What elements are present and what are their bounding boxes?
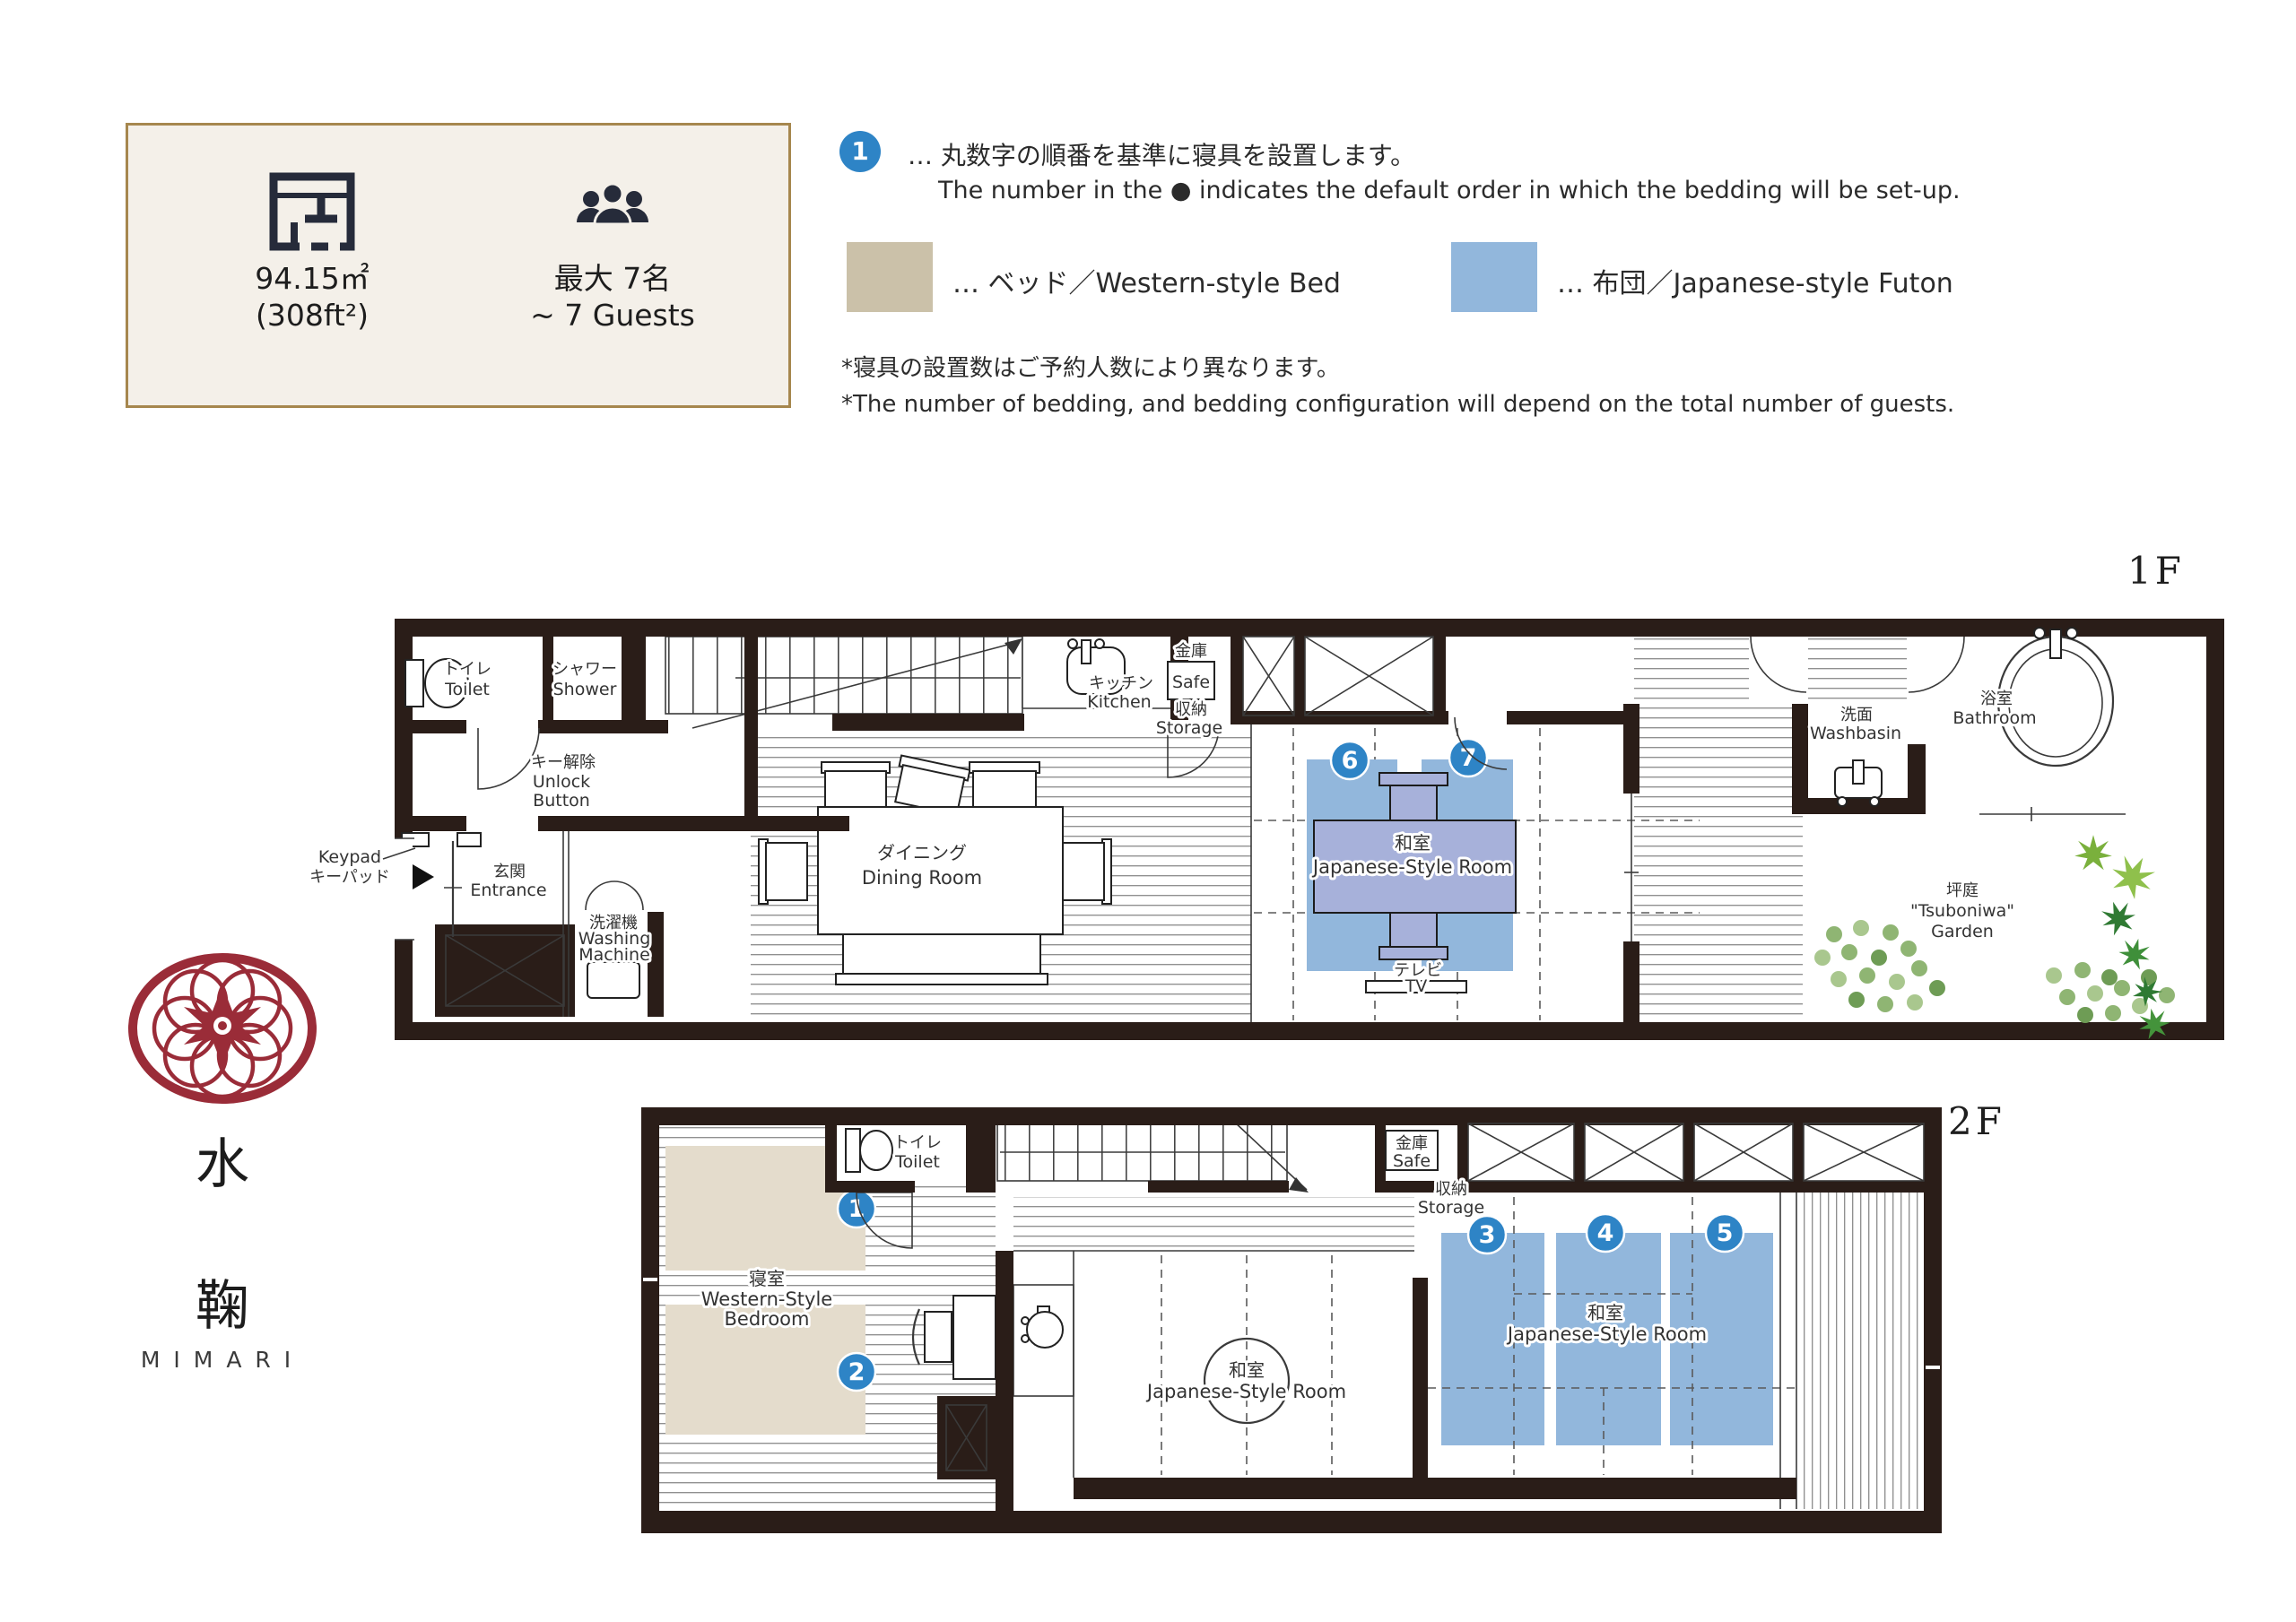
tv-label-en: TV: [1405, 976, 1428, 996]
logo-kanji-mizu: 水: [126, 1121, 319, 1199]
closet-x-1f-a: [1243, 637, 1294, 716]
bathtub-icon: [1998, 628, 2113, 766]
unlock-label-en1: Unlock: [533, 772, 590, 792]
svg-text:5: 5: [1717, 1219, 1734, 1247]
legend-order-circle: 1: [839, 131, 881, 172]
keypad-label-ja: キーパッド: [309, 868, 390, 887]
toilet-1f-label-ja: トイレ: [443, 660, 491, 679]
washbasin-icon-2f: [1013, 1285, 1074, 1396]
dining-label-ja: ダイニング: [877, 842, 967, 863]
hallway-floor-2f: [1013, 1197, 1414, 1251]
capacity-ja: 最大 7名: [478, 260, 747, 297]
entrance-fixture-b: [457, 833, 481, 846]
closet-x-entrance: [435, 924, 575, 1017]
floorplan-page: 94.15㎡ (308ft²) 最大 7名 ~ 7 Guests 1 … 丸数字…: [0, 0, 2296, 1622]
garden-plants: [1814, 835, 2175, 1040]
japanese-room-1f-label-en: Japanese-Style Room: [1311, 856, 1512, 878]
floor1-plan: 6 7 和室 Japanese-Style Room テレビ TV ダイニング: [305, 619, 2224, 1040]
unlock-label-ja: キー解除: [531, 753, 596, 772]
japanese-room-2f-right-label-ja: 和室: [1587, 1302, 1623, 1323]
safe-label-ja-1f: 金庫: [1175, 642, 1207, 661]
toilet-2f-label-en: Toilet: [894, 1152, 940, 1172]
bathroom-label-en: Bathroom: [1952, 708, 2036, 728]
storage-label-en-1f: Storage: [1156, 718, 1222, 738]
legend-footnote-en: *The number of bedding, and bedding conf…: [841, 391, 1954, 418]
garden-label-ja: 坪庭: [1946, 881, 1979, 900]
kitchen-label-en: Kitchen: [1087, 692, 1151, 712]
closet-x-2f-a: [1468, 1123, 1574, 1181]
svg-text:6: 6: [1342, 747, 1359, 775]
washbasin-label-ja: 洗面: [1840, 706, 1873, 724]
japanese-room-1f-label-ja: 和室: [1395, 832, 1431, 854]
safe-label-ja-2f: 金庫: [1396, 1134, 1428, 1153]
closet-x-1f-b: [1305, 637, 1433, 716]
unlock-label-en2: Button: [533, 791, 590, 811]
safe-label-en-2f: Safe: [1393, 1151, 1431, 1171]
bedroom-label-en1: Western-Style: [701, 1288, 832, 1310]
japanese-room-2f-left-label-en: Japanese-Style Room: [1145, 1381, 1346, 1402]
storage-label-ja-1f: 収納: [1175, 700, 1207, 719]
bed-swatch-label: … ベッド／Western-style Bed: [952, 261, 1341, 300]
logo-latin-name: MIMARI: [115, 1347, 330, 1373]
bedroom-label-en2: Bedroom: [725, 1308, 810, 1330]
logo-kanji-mari: 鞠: [126, 1262, 319, 1340]
japanese-room-2f-left-label-ja: 和室: [1229, 1359, 1265, 1381]
legend-order-note-en: The number in the ● indicates the defaul…: [938, 177, 1961, 204]
futon-swatch-label: … 布団／Japanese-style Futon: [1557, 261, 1953, 300]
floor2-plan: 1 2 寝室 Western-Style Bedroom トイレ Toilet: [641, 1107, 1942, 1533]
washer-label-en2: Machine: [578, 945, 650, 965]
capacity-cell: 最大 7名 ~ 7 Guests: [478, 126, 747, 405]
info-box: 94.15㎡ (308ft²) 最大 7名 ~ 7 Guests: [126, 123, 791, 408]
closet-x-2f-d: [1804, 1123, 1924, 1181]
futon-color-swatch: [1451, 242, 1537, 312]
area-ft2: (308ft²): [178, 297, 447, 334]
floorplan-icon: [269, 172, 355, 251]
svg-text:2: 2: [848, 1358, 865, 1386]
bed-color-swatch: [847, 242, 933, 312]
legend-order-number: 1: [851, 136, 868, 166]
svg-text:4: 4: [1597, 1219, 1614, 1247]
floor2-label: 2F: [1948, 1099, 2005, 1143]
japanese-room-2f-right-label-en: Japanese-Style Room: [1506, 1323, 1707, 1345]
storage-label-en-2f: Storage: [1418, 1198, 1484, 1218]
bathroom-label-ja: 浴室: [1980, 690, 2013, 708]
legend-footnote-ja: *寝具の設置数はご予約人数により異なります。: [841, 350, 1340, 383]
closet-x-bedroom: [937, 1396, 996, 1479]
garden-label-en2: Garden: [1931, 922, 1994, 941]
toilet-1f-label-en: Toilet: [444, 680, 490, 699]
toilet-2f-label-ja: トイレ: [893, 1133, 942, 1152]
closet-x-2f-b: [1585, 1123, 1683, 1181]
shower-label-en: Shower: [553, 680, 617, 699]
entrance-label-en: Entrance: [470, 880, 546, 900]
entrance-arrow: [413, 864, 434, 889]
washbasin-label-en: Washbasin: [1810, 724, 1901, 743]
washer-door-arcs: [586, 881, 643, 910]
closet-x-2f-c: [1694, 1123, 1793, 1181]
storage-label-ja-2f: 収納: [1435, 1180, 1467, 1199]
stairs-1f: [665, 637, 1022, 714]
dining-label-en: Dining Room: [862, 867, 982, 889]
entrance-label-ja: 玄関: [493, 863, 526, 881]
area-cell: 94.15㎡ (308ft²): [178, 126, 447, 405]
bedroom-label-ja: 寝室: [749, 1268, 785, 1289]
kitchen-label-ja: キッチン: [1089, 674, 1153, 693]
capacity-en: ~ 7 Guests: [478, 297, 747, 334]
toilet-icon-2f: [846, 1129, 892, 1172]
legend-order-note-ja: … 丸数字の順番を基準に寝具を設置します。: [908, 136, 1415, 172]
svg-text:3: 3: [1479, 1221, 1496, 1249]
washing-machine-icon: [587, 962, 639, 998]
floor1-label: 1F: [2127, 549, 2185, 593]
safe-label-en-1f: Safe: [1172, 672, 1210, 692]
mimari-logo-icon: [126, 952, 319, 1105]
keypad-label-en: Keypad: [318, 847, 381, 867]
veranda-floor: [1796, 1193, 1924, 1509]
guests-icon: [570, 172, 656, 251]
garden-label-en1: "Tsuboniwa": [1910, 901, 2014, 921]
shower-label-ja: シャワー: [552, 660, 617, 679]
unlock-door-arc: [478, 728, 539, 789]
area-m2: 94.15㎡: [178, 260, 447, 297]
